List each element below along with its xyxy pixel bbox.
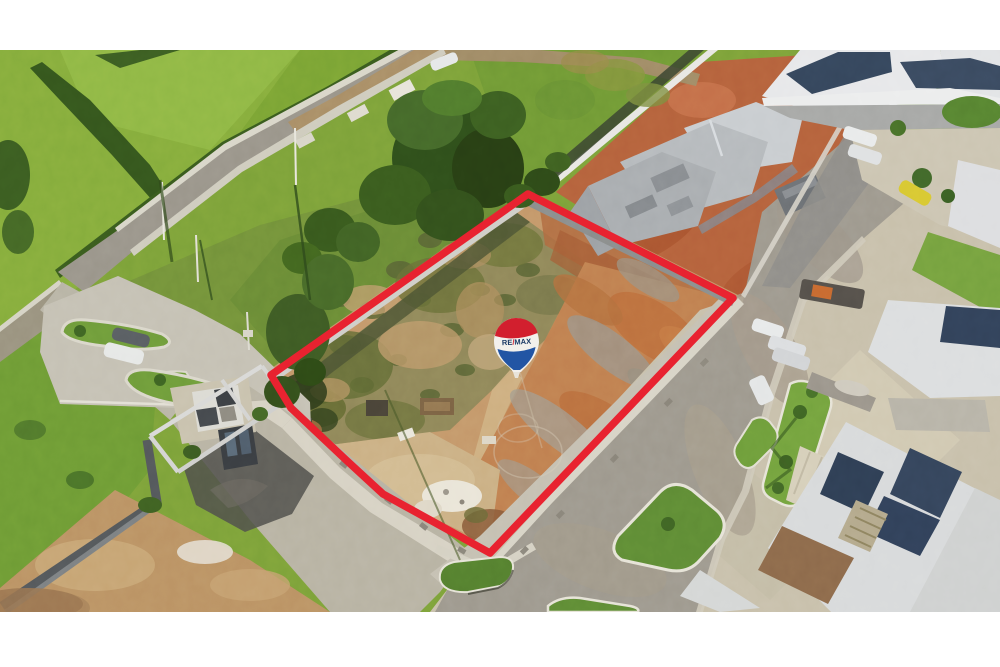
svg-text:RE/MAX: RE/MAX xyxy=(502,337,532,348)
